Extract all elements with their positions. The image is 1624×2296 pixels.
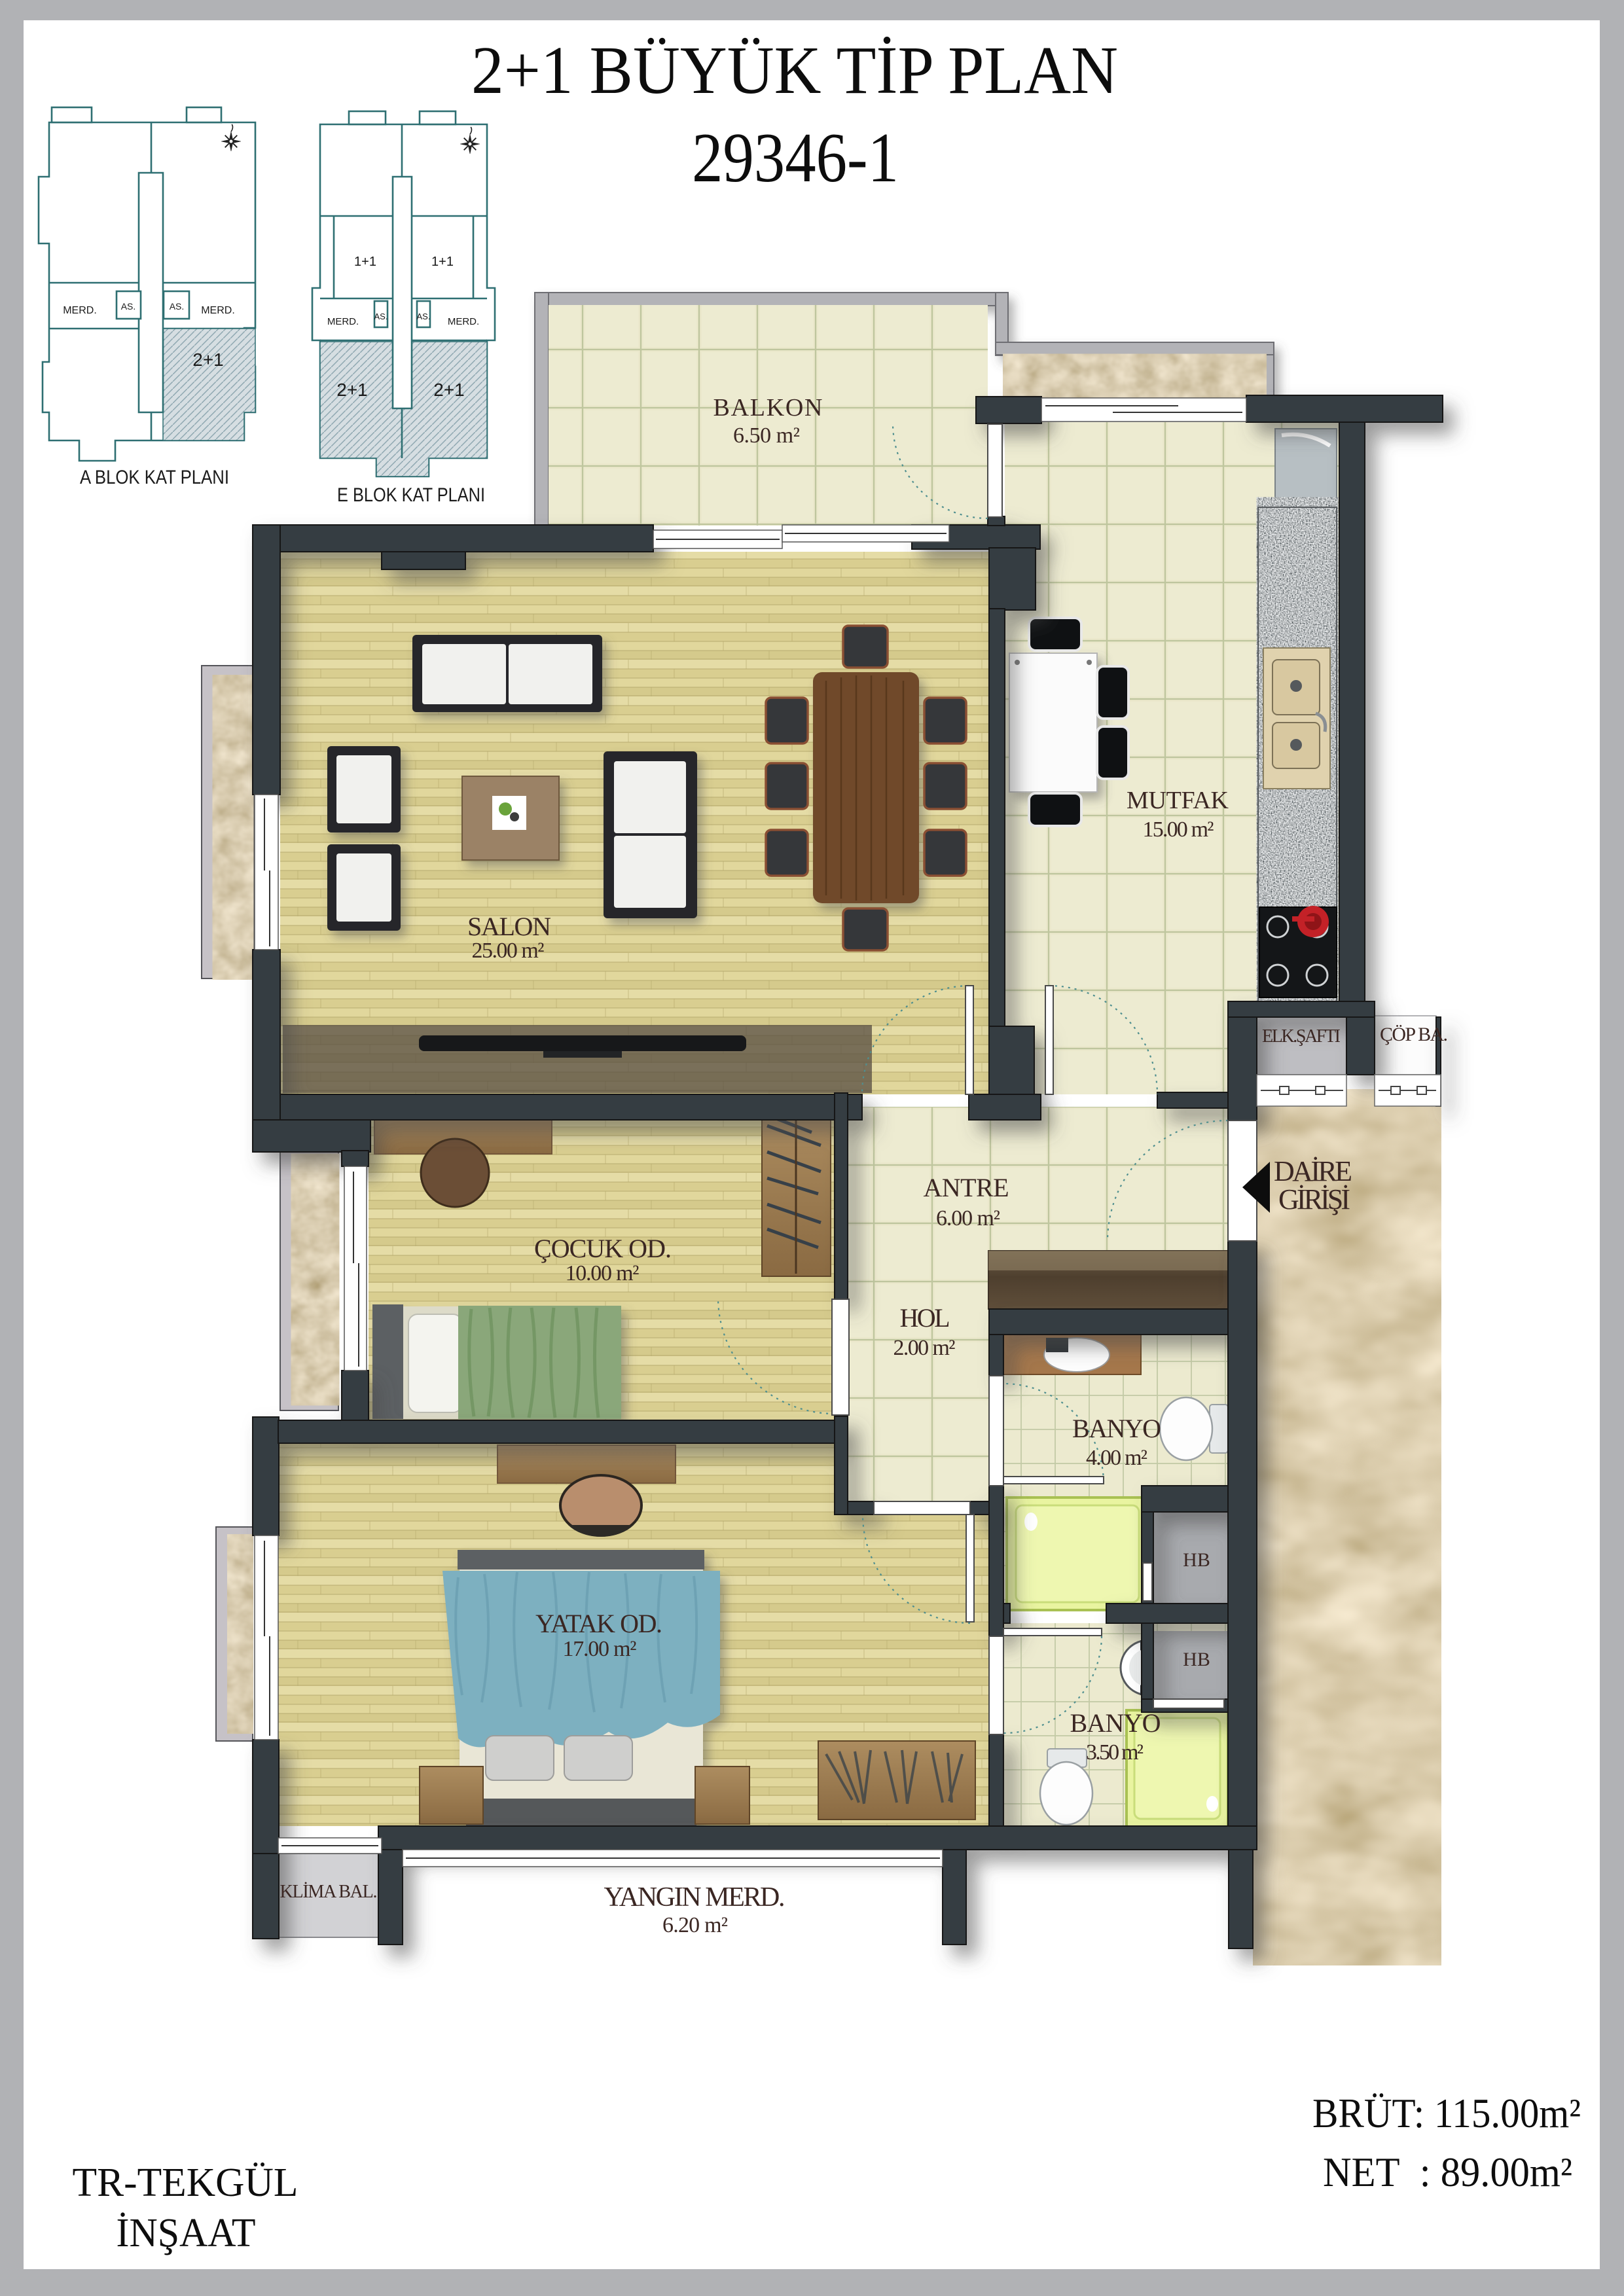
svg-text:2+1 BÜYÜK TİP PLAN: 2+1 BÜYÜK TİP PLAN	[471, 33, 1118, 108]
svg-text:15.00 m²: 15.00 m²	[1143, 817, 1214, 842]
svg-text:6.20 m²: 6.20 m²	[662, 1913, 728, 1937]
svg-text:YATAK OD.: YATAK OD.	[535, 1609, 662, 1638]
svg-text:AS.: AS.	[170, 301, 185, 312]
svg-text:TR-TEKGÜL: TR-TEKGÜL	[73, 2161, 298, 2205]
svg-text:4.00 m²: 4.00 m²	[1086, 1446, 1147, 1470]
svg-text:HOL: HOL	[900, 1303, 950, 1333]
svg-text:MERD.: MERD.	[448, 316, 479, 327]
svg-text:NET : 89.00m²: NET : 89.00m²	[1323, 2149, 1572, 2195]
svg-text:BANYO: BANYO	[1070, 1708, 1161, 1738]
svg-text:BANYO: BANYO	[1072, 1414, 1161, 1443]
svg-text:ANTRE: ANTRE	[924, 1173, 1009, 1202]
svg-text:2+1: 2+1	[336, 380, 368, 400]
svg-text:GİRİŞİ: GİRİŞİ	[1278, 1183, 1350, 1215]
svg-text:DAİRE: DAİRE	[1274, 1155, 1352, 1187]
svg-text:AS.: AS.	[374, 312, 388, 321]
svg-text:ÇOCUK OD.: ÇOCUK OD.	[534, 1234, 672, 1263]
svg-text:2+1: 2+1	[433, 380, 465, 400]
svg-text:MERD.: MERD.	[327, 316, 359, 327]
svg-text:HB: HB	[1183, 1549, 1210, 1571]
svg-text:MERD.: MERD.	[63, 305, 97, 316]
svg-text:1+1: 1+1	[354, 255, 376, 269]
svg-text:MERD.: MERD.	[201, 305, 235, 316]
svg-text:SALON: SALON	[467, 912, 551, 941]
svg-text:6.00 m²: 6.00 m²	[936, 1206, 1000, 1230]
svg-text:İNŞAAT: İNŞAAT	[117, 2211, 256, 2255]
svg-text:ÇÖP BA.: ÇÖP BA.	[1380, 1024, 1448, 1045]
svg-text:17.00 m²: 17.00 m²	[563, 1637, 637, 1661]
svg-text:29346-1: 29346-1	[692, 119, 899, 197]
svg-text:2.00 m²: 2.00 m²	[893, 1336, 956, 1360]
svg-text:BALKON: BALKON	[713, 394, 823, 422]
svg-text:10.00 m²: 10.00 m²	[566, 1261, 640, 1285]
svg-text:25.00 m²: 25.00 m²	[472, 939, 545, 963]
svg-text:AS.: AS.	[417, 312, 431, 321]
svg-text:6.50 m²: 6.50 m²	[733, 423, 800, 448]
svg-text:AS.: AS.	[121, 301, 136, 312]
svg-text:MUTFAK: MUTFAK	[1127, 787, 1229, 814]
svg-text:3.50 m²: 3.50 m²	[1086, 1740, 1144, 1765]
svg-text:1+1: 1+1	[431, 255, 454, 269]
svg-text:YANGIN MERD.: YANGIN MERD.	[604, 1882, 785, 1912]
svg-text:A BLOK KAT PLANI: A BLOK KAT PLANI	[80, 467, 229, 488]
svg-text:ELK.ŞAFTI: ELK.ŞAFTI	[1262, 1026, 1341, 1047]
svg-text:HB: HB	[1183, 1649, 1210, 1670]
svg-text:BRÜT: 115.00m²: BRÜT: 115.00m²	[1312, 2090, 1581, 2136]
svg-text:2+1: 2+1	[192, 350, 224, 370]
svg-text:KLİMA BAL.: KLİMA BAL.	[280, 1882, 378, 1902]
svg-text:E BLOK KAT PLANI: E BLOK KAT PLANI	[337, 484, 485, 506]
